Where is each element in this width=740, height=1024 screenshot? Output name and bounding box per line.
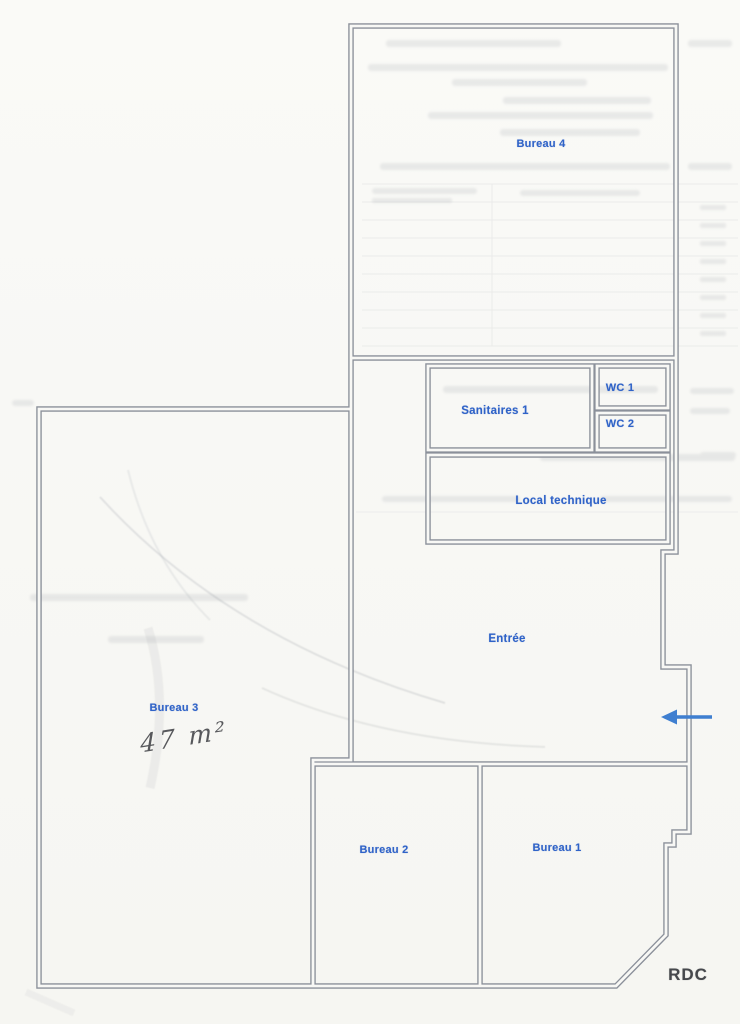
room-label-bureau-3: Bureau 3 [149,702,198,714]
scanned-floorplan-page: Bureau 4 Sanitaires 1 WC 1 WC 2 Local te… [0,0,740,1024]
floorplan-drawing [0,0,740,1024]
room-label-bureau-1: Bureau 1 [532,842,581,854]
scan-artifact-curves [26,470,545,1013]
room-label-wc-1: WC 1 [606,382,635,394]
room-label-bureau-4: Bureau 4 [516,138,565,150]
bleedthrough-text-ghost [12,40,736,643]
room-label-entree: Entrée [488,633,525,645]
room-label-wc-2: WC 2 [606,418,635,430]
room-label-sanitaires-1: Sanitaires 1 [461,405,529,417]
floor-label: RDC [668,965,708,985]
bleedthrough-table-ghost [356,184,738,512]
room-label-local-technique: Local technique [515,495,606,507]
room-label-bureau-2: Bureau 2 [359,844,408,856]
